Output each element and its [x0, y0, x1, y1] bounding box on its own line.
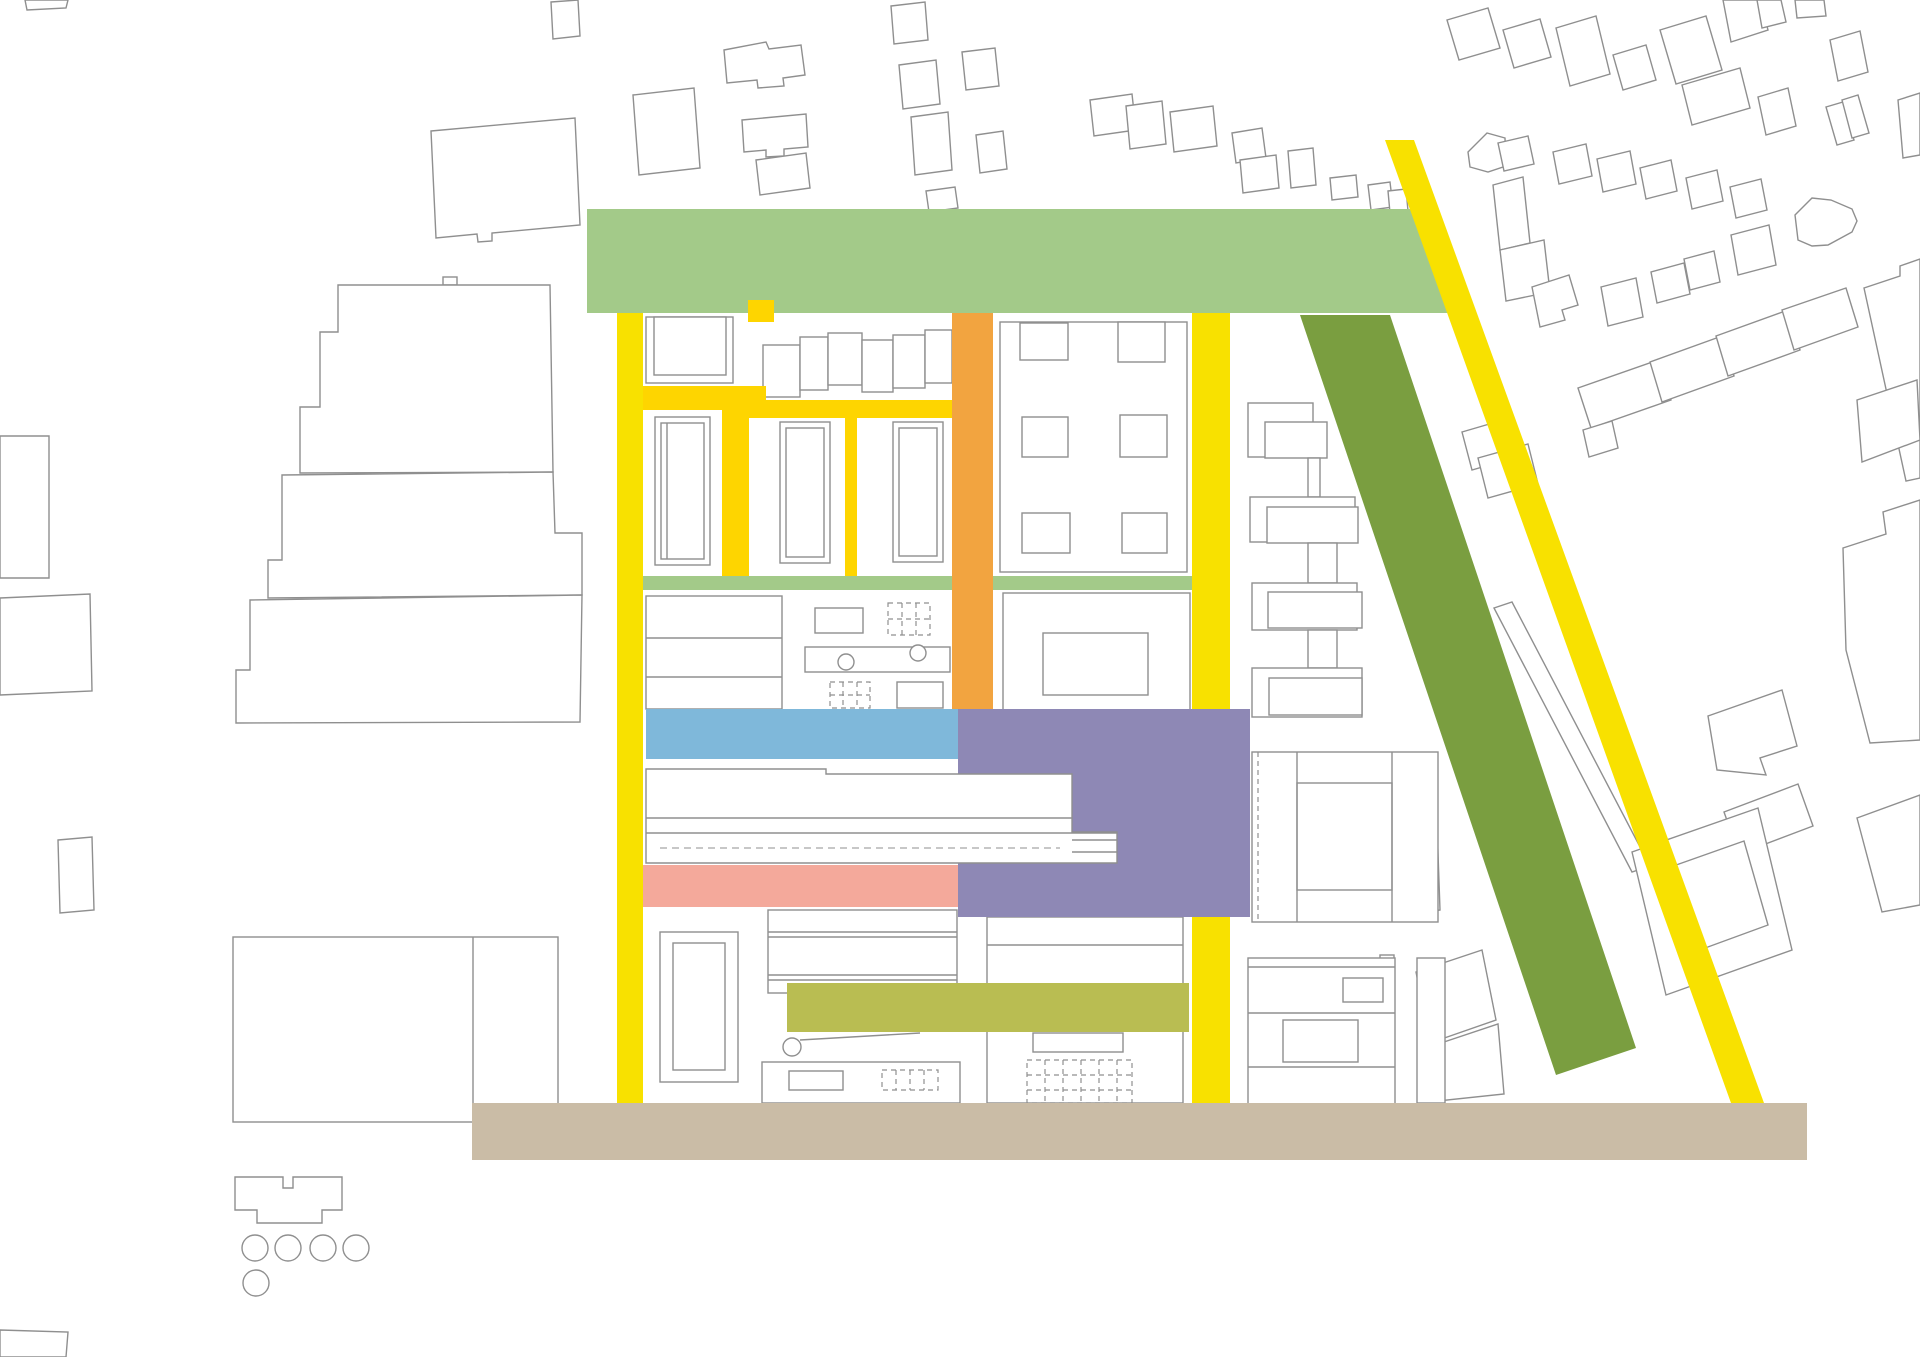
overlay-pink-block [643, 865, 958, 907]
overlay-green-band [587, 209, 1452, 313]
context-buildings-shape [1583, 421, 1618, 457]
context-buildings-shape [236, 595, 582, 723]
plan-interior-buildings-shape [1120, 415, 1167, 457]
context-buildings-shape [1795, 0, 1826, 18]
overlay-blue-block-shape [646, 709, 958, 759]
context-buildings-shape [1684, 251, 1720, 290]
context-buildings-shape [724, 42, 805, 88]
plan-interior-buildings-shape [925, 330, 952, 383]
plan-interior-buildings-shape [1268, 592, 1362, 628]
overlay-olive-band [787, 983, 1189, 1032]
overlay-gold-connectors-shape [748, 300, 774, 322]
plan-interior-buildings-shape [654, 317, 726, 375]
overlay-green-mid-strips-shape [993, 576, 1192, 590]
overlay-gold-connectors-shape [722, 408, 749, 576]
plan-interior-buildings-shape [800, 1033, 920, 1040]
context-buildings-shape [1830, 31, 1868, 81]
context-buildings-shape [0, 436, 49, 578]
context-buildings-shape [268, 472, 582, 598]
plan-circles-shape [783, 1038, 801, 1056]
context-buildings-shape [1730, 179, 1767, 218]
plan-interior-buildings-shape [1297, 783, 1392, 890]
plan-interior-buildings-shape [646, 596, 782, 709]
context-buildings-shape [1556, 16, 1610, 86]
plan-interior-buildings-shape [1308, 458, 1320, 497]
plan-circles-shape [242, 1235, 268, 1261]
context-buildings-shape [431, 118, 580, 242]
context-buildings-shape [235, 1177, 342, 1223]
context-buildings-shape [1601, 278, 1643, 326]
overlay-orange-strip-shape [952, 313, 993, 710]
overlay-yellow-strips-shape [1192, 313, 1230, 1103]
context-buildings-shape [911, 112, 952, 175]
context-buildings-shape [25, 0, 68, 10]
plan-interior-buildings-shape [862, 340, 893, 392]
context-buildings-shape [551, 0, 580, 39]
plan-interior-buildings-shape [893, 335, 925, 388]
plan-interior-buildings-shape [1265, 422, 1327, 458]
context-buildings-shape [0, 594, 92, 695]
context-buildings-shape [1613, 45, 1656, 90]
site-plan-svg [0, 0, 1920, 1357]
plan-interior-buildings-shape [800, 337, 828, 390]
context-buildings-shape [1795, 198, 1857, 246]
context-buildings-shape [1782, 288, 1858, 350]
context-buildings-shape [1498, 136, 1534, 171]
context-buildings-shape [1898, 93, 1920, 158]
plan-interior-buildings-shape [1269, 678, 1362, 715]
context-buildings-shape [1447, 8, 1500, 60]
plan-interior-buildings-shape [899, 428, 937, 556]
context-buildings-shape [58, 837, 94, 913]
plan-interior-buildings-shape [1122, 513, 1167, 553]
plan-interior-buildings-shape [763, 345, 800, 397]
context-buildings-shape [1493, 177, 1530, 250]
plan-interior-buildings-shape [1033, 1033, 1123, 1052]
plan-circles-shape [910, 645, 926, 661]
context-buildings-shape [1330, 175, 1358, 200]
plan-interior-buildings-shape [1022, 513, 1070, 553]
plan-interior-buildings-shape [828, 333, 862, 385]
context-buildings-shape [1651, 263, 1690, 303]
context-buildings-shape [1640, 160, 1677, 199]
context-buildings-shape [1857, 795, 1920, 912]
context-buildings-shape [926, 187, 958, 212]
context-buildings-shape [1758, 88, 1796, 135]
context-buildings-shape [1170, 106, 1217, 152]
masterplan-canvas [0, 0, 1920, 1357]
plan-circles-shape [343, 1235, 369, 1261]
plan-circles-shape [243, 1270, 269, 1296]
overlay-orange-strip [952, 313, 993, 710]
plan-circles-shape [310, 1235, 336, 1261]
plan-interior-buildings-shape [1343, 978, 1383, 1002]
plan-interior-buildings-shape [805, 647, 950, 672]
context-buildings-shape [1731, 225, 1776, 275]
context-buildings-shape [899, 60, 940, 109]
context-buildings-shape [1843, 500, 1920, 743]
plan-interior-buildings-shape [1417, 958, 1445, 1103]
plan-interior-buildings-shape [1118, 322, 1165, 362]
plan-interior-buildings-shape [1043, 633, 1148, 695]
context-buildings-shape [1240, 155, 1279, 193]
plan-circles-shape [275, 1235, 301, 1261]
context-buildings-shape [0, 1330, 68, 1357]
plan-interior-buildings-shape [1022, 417, 1068, 457]
context-buildings-shape [891, 2, 928, 44]
overlay-tan-band-shape [472, 1103, 1807, 1160]
overlay-green-band-shape [587, 209, 1452, 313]
overlay-green-mid-strips-shape [643, 576, 952, 590]
context-buildings-shape [1708, 690, 1797, 775]
station-building [646, 769, 1117, 863]
context-buildings-shape [1757, 0, 1786, 28]
plan-interior-buildings-shape [1267, 507, 1358, 543]
context-buildings-shape [756, 153, 810, 195]
overlay-yellow-strips-shape [617, 313, 643, 1103]
context-buildings-shape [233, 937, 558, 1122]
overlay-blue-block [646, 709, 958, 759]
overlay-pink-block-shape [643, 865, 958, 907]
context-buildings-shape [1660, 16, 1722, 84]
context-buildings-shape [300, 285, 553, 473]
plan-interior-buildings-shape [897, 682, 943, 708]
plan-interior-buildings-shape [1020, 323, 1068, 360]
context-buildings-shape [962, 48, 999, 90]
context-buildings-shape [1597, 151, 1636, 192]
context-buildings-shape [1288, 148, 1316, 188]
context-buildings-shape [443, 277, 457, 285]
station-building-shape [646, 769, 1117, 863]
overlay-gold-connectors-shape [845, 415, 857, 576]
overlay-tan-band [472, 1103, 1807, 1160]
plan-interior-buildings-shape [786, 428, 824, 557]
plan-interior-buildings-shape [1283, 1020, 1358, 1062]
context-buildings-shape [633, 88, 700, 175]
plan-interior-buildings-shape [815, 608, 863, 633]
plan-interior-buildings-shape [1308, 630, 1337, 668]
context-buildings-shape [976, 131, 1007, 173]
plan-circles-shape [838, 654, 854, 670]
plan-interior-buildings-shape [673, 943, 725, 1070]
context-buildings-shape [1503, 19, 1551, 68]
overlay-olive-band-shape [787, 983, 1189, 1032]
context-buildings-shape [1126, 101, 1166, 149]
context-buildings-shape [1686, 170, 1723, 209]
context-buildings-shape [1553, 144, 1592, 184]
context-buildings-shape [742, 114, 808, 157]
overlay-green-mid-strips [643, 576, 1192, 590]
plan-interior-buildings-shape [1308, 543, 1337, 583]
plan-interior-buildings-shape [789, 1071, 843, 1090]
